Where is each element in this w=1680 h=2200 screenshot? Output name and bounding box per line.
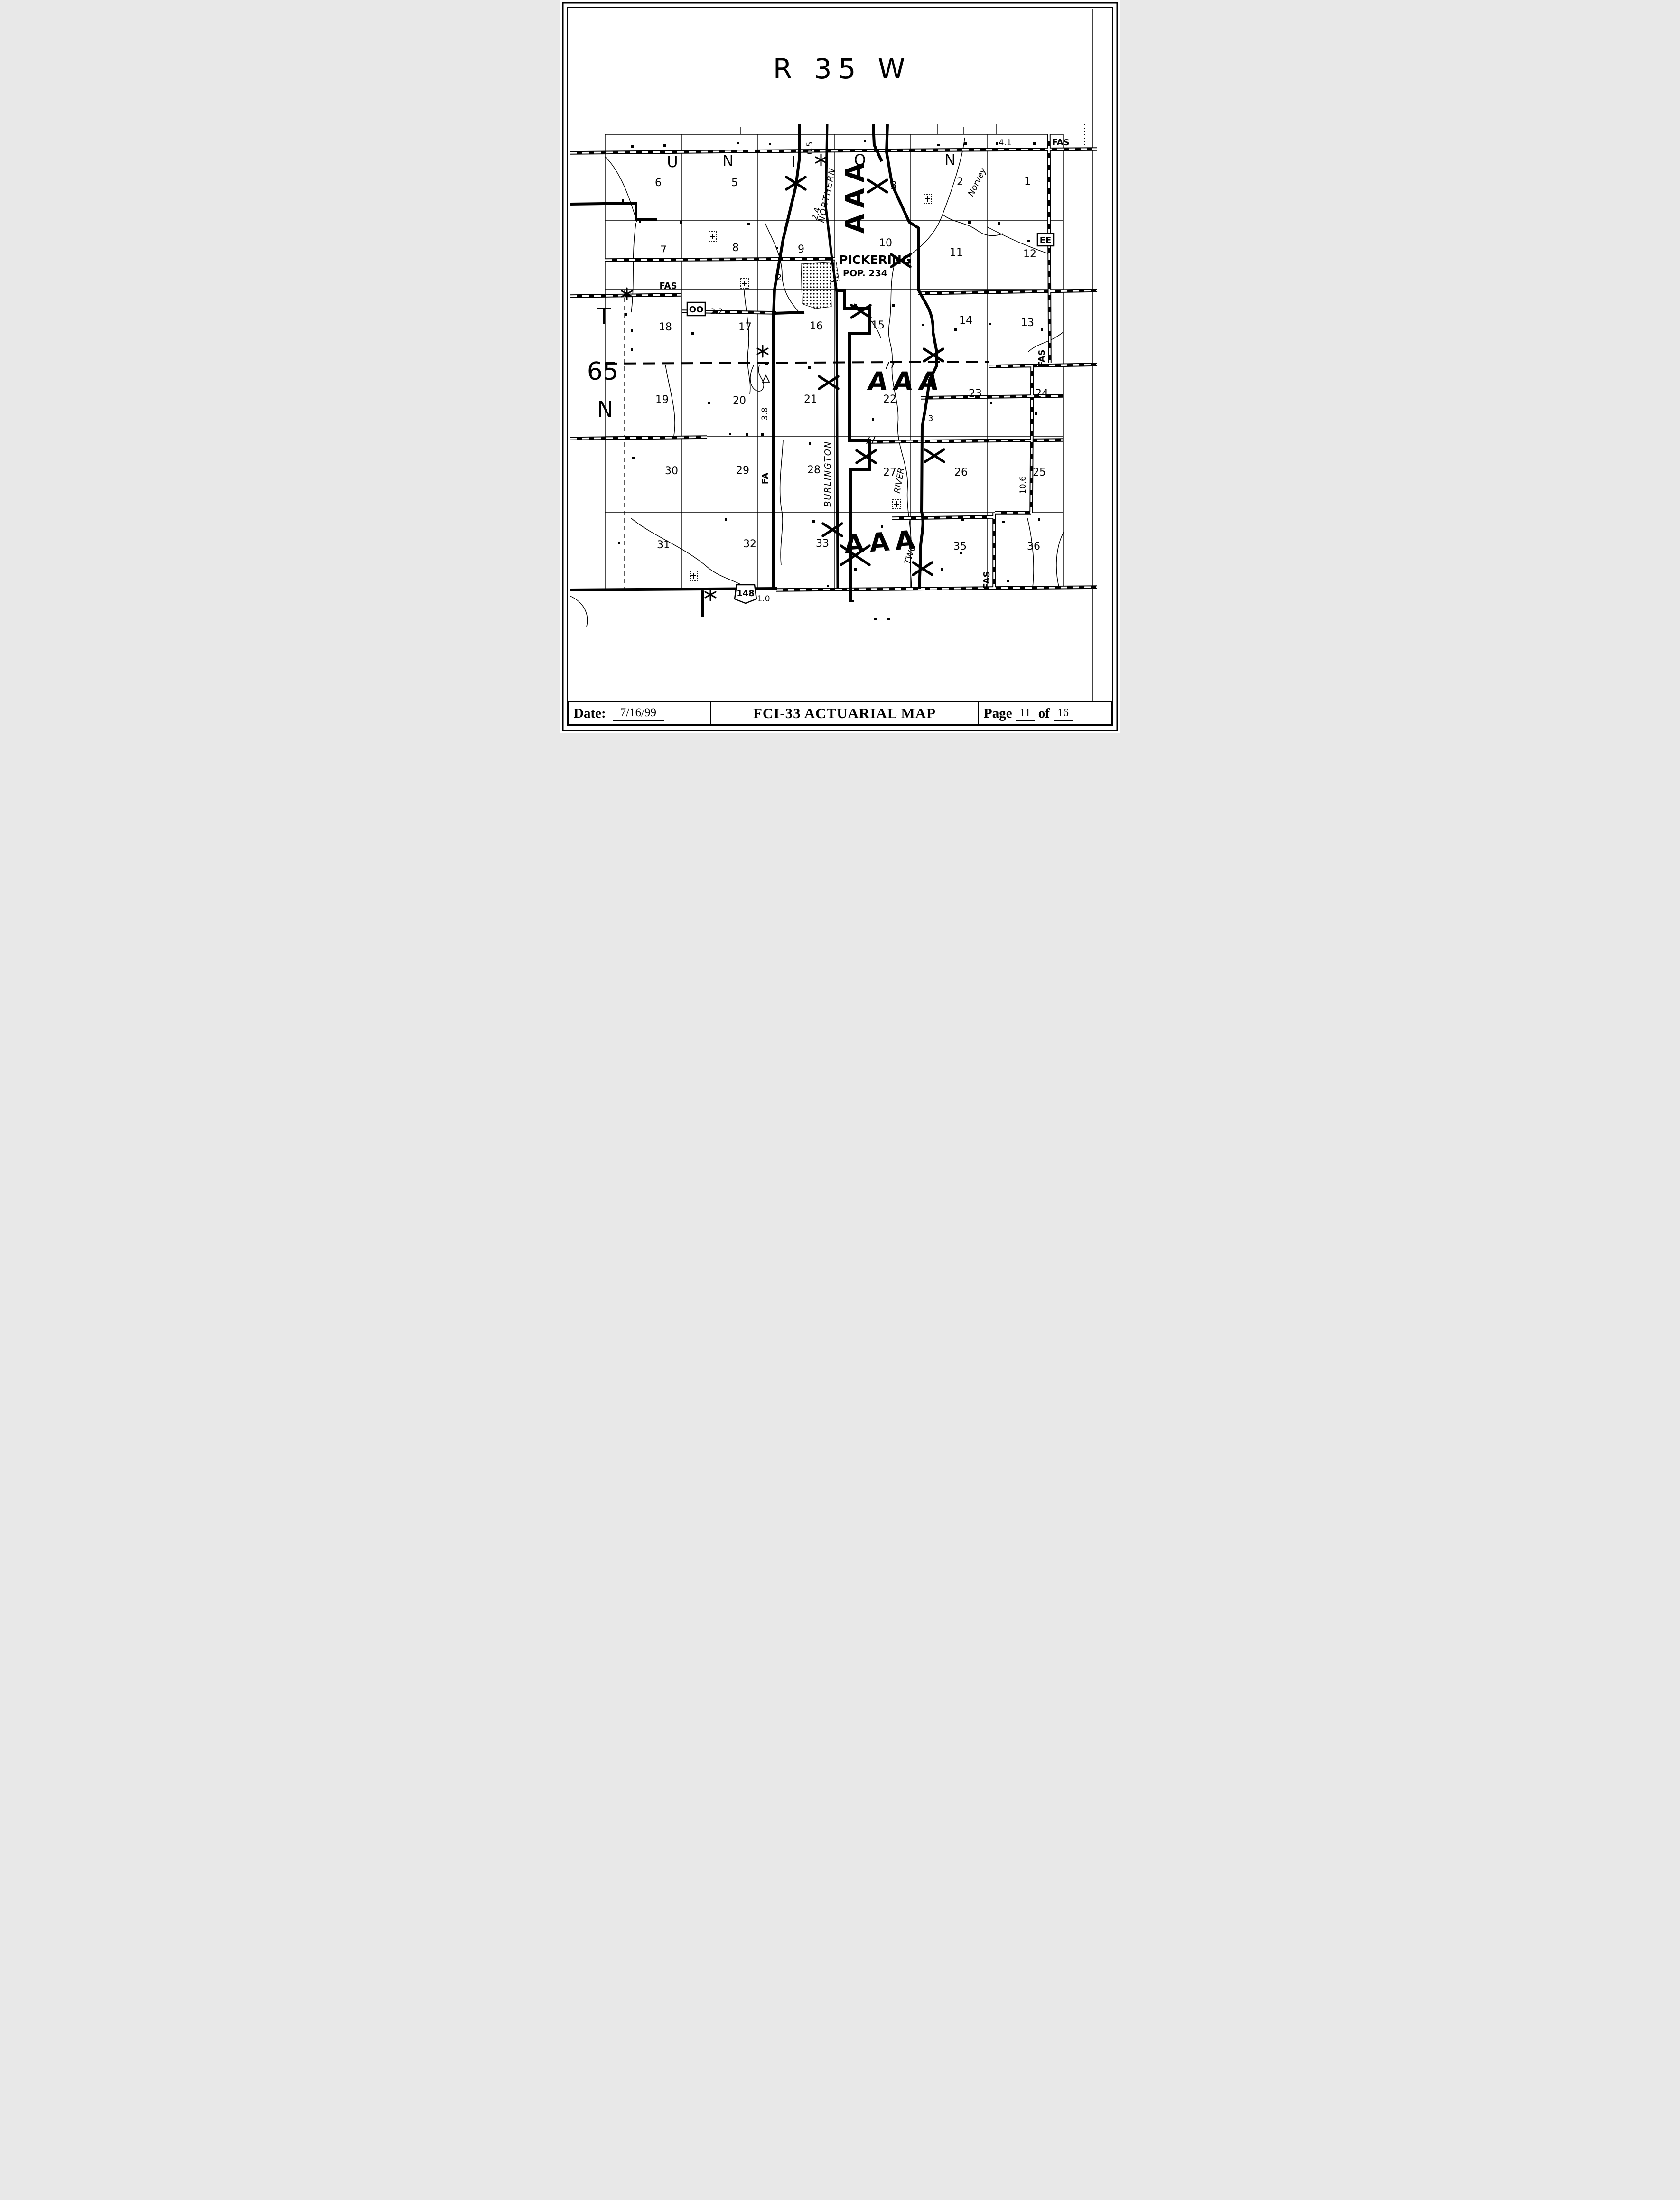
- section-number: 20: [733, 395, 746, 407]
- section-number: 2: [957, 176, 963, 188]
- mileage-3: 3: [928, 414, 933, 423]
- triangle-marker: [763, 375, 769, 382]
- church-symbol: [893, 499, 900, 509]
- route-148-shield: 148: [735, 585, 756, 603]
- title-block: Date: 7/16/99 FCI-33 ACTUARIAL MAP Page …: [568, 701, 1112, 726]
- date-label: Date:: [574, 706, 606, 721]
- page-label: Page: [984, 706, 1012, 721]
- section-number: 11: [950, 247, 963, 259]
- section-number: 23: [969, 388, 982, 400]
- section-number: 33: [816, 538, 829, 550]
- union-letter: N: [944, 151, 956, 169]
- route-ee-label: EE: [1040, 235, 1052, 245]
- section-number: 5: [731, 177, 738, 189]
- page-total: 16: [1054, 707, 1073, 721]
- page-number: 11: [1016, 707, 1035, 721]
- of-label: of: [1038, 706, 1050, 721]
- section-number: 10: [879, 237, 892, 249]
- route-ee-box: EE: [1037, 234, 1054, 246]
- date-value: 7/16/99: [613, 706, 664, 721]
- section-number: 18: [659, 321, 672, 333]
- stream-sec36: [1027, 518, 1064, 589]
- road-label-fa: FA: [760, 473, 770, 484]
- star-markers: [622, 154, 826, 600]
- union-letter: U: [667, 153, 678, 171]
- union-letter: I: [791, 153, 795, 171]
- zone-label-aaa-top: AAA: [840, 157, 870, 234]
- pickering-town-area: [801, 262, 839, 309]
- stream-oxbow: [750, 365, 764, 391]
- section-number: 35: [953, 541, 967, 552]
- date-cell: Date: 7/16/99: [569, 702, 711, 724]
- map-title-cell: FCI-33 ACTUARIAL MAP: [711, 702, 979, 724]
- stream-sec13: [1028, 332, 1063, 352]
- section-number: 15: [871, 319, 885, 331]
- section-number: 17: [738, 321, 752, 333]
- mileage-1-0: 1.0: [757, 594, 770, 604]
- railroad-label-burlington: BURLINGTON: [823, 441, 833, 507]
- section-number: 16: [810, 320, 823, 332]
- norvey-branch: [943, 215, 1003, 236]
- union-letter: N: [722, 152, 734, 170]
- stream-sec17: [744, 290, 750, 394]
- section-number: 25: [1033, 467, 1046, 478]
- mileage-10-6: 10.6: [1018, 476, 1028, 494]
- actuarial-map-sheet: R 35 W T 65 N: [560, 0, 1120, 733]
- section-number: 12: [1023, 248, 1036, 260]
- town-population: POP. 234: [843, 268, 887, 279]
- section-number: 9: [798, 243, 804, 255]
- stream-sec8: [765, 223, 799, 312]
- township-letter-t: T: [597, 303, 611, 329]
- mileage-0-5: 0.5: [805, 141, 815, 154]
- section-number: 19: [655, 394, 669, 406]
- section-number: 36: [1027, 541, 1040, 552]
- section-number: 29: [736, 465, 749, 477]
- mileage-3-8: 3.8: [760, 407, 770, 420]
- church-symbol: [690, 571, 698, 580]
- route-148-label: 148: [737, 589, 755, 599]
- section-number: 28: [807, 464, 821, 476]
- stream-sec31: [631, 518, 745, 587]
- road-label-fas-bottom: FAS: [982, 571, 992, 589]
- mileage-2: 2: [777, 273, 782, 282]
- township-number: 65: [587, 357, 618, 386]
- mileage-2-2: 2.2: [710, 307, 723, 317]
- section-number: 1: [1024, 176, 1031, 187]
- section-number: 21: [804, 393, 817, 405]
- section-number: 31: [657, 539, 670, 551]
- church-symbol: [709, 232, 717, 241]
- stream-margin: [570, 596, 588, 627]
- section-number: 24: [1035, 388, 1048, 400]
- range-title: R 35 W: [773, 53, 912, 85]
- map-canvas: R 35 W T 65 N: [560, 0, 1120, 733]
- zone-label-aaa-middle: AAA: [866, 366, 946, 396]
- church-symbol: [924, 194, 932, 204]
- road-label-fas-right: FAS: [1037, 349, 1047, 367]
- page-cell: Page 11 of 16: [979, 702, 1111, 724]
- section-number: 26: [954, 467, 968, 478]
- route-oo-label: OO: [689, 305, 704, 315]
- section-number: 32: [743, 538, 756, 550]
- section-number: 3: [890, 180, 897, 192]
- route-oo-box: OO: [687, 302, 705, 316]
- section-number: 7: [660, 244, 667, 256]
- section-number: 30: [665, 465, 678, 477]
- section-number: 27: [883, 467, 896, 478]
- section-number: 14: [959, 315, 972, 327]
- township-dashed-line: [605, 362, 989, 364]
- mileage-4-1: 4.1: [999, 138, 1011, 148]
- section-number: 6: [655, 177, 662, 189]
- road-label-fas-left: FAS: [659, 281, 677, 291]
- section-number: 8: [732, 242, 739, 254]
- stream-label-norvey: Norvey: [966, 166, 989, 198]
- stream-sec29: [780, 440, 783, 565]
- road-label-fas-top: FAS: [1052, 138, 1069, 148]
- church-symbol: [741, 279, 748, 288]
- stream-west: [605, 157, 637, 312]
- map-title: FCI-33 ACTUARIAL MAP: [753, 705, 936, 722]
- section-number: 13: [1021, 317, 1034, 329]
- town-name: PICKERING: [839, 253, 911, 267]
